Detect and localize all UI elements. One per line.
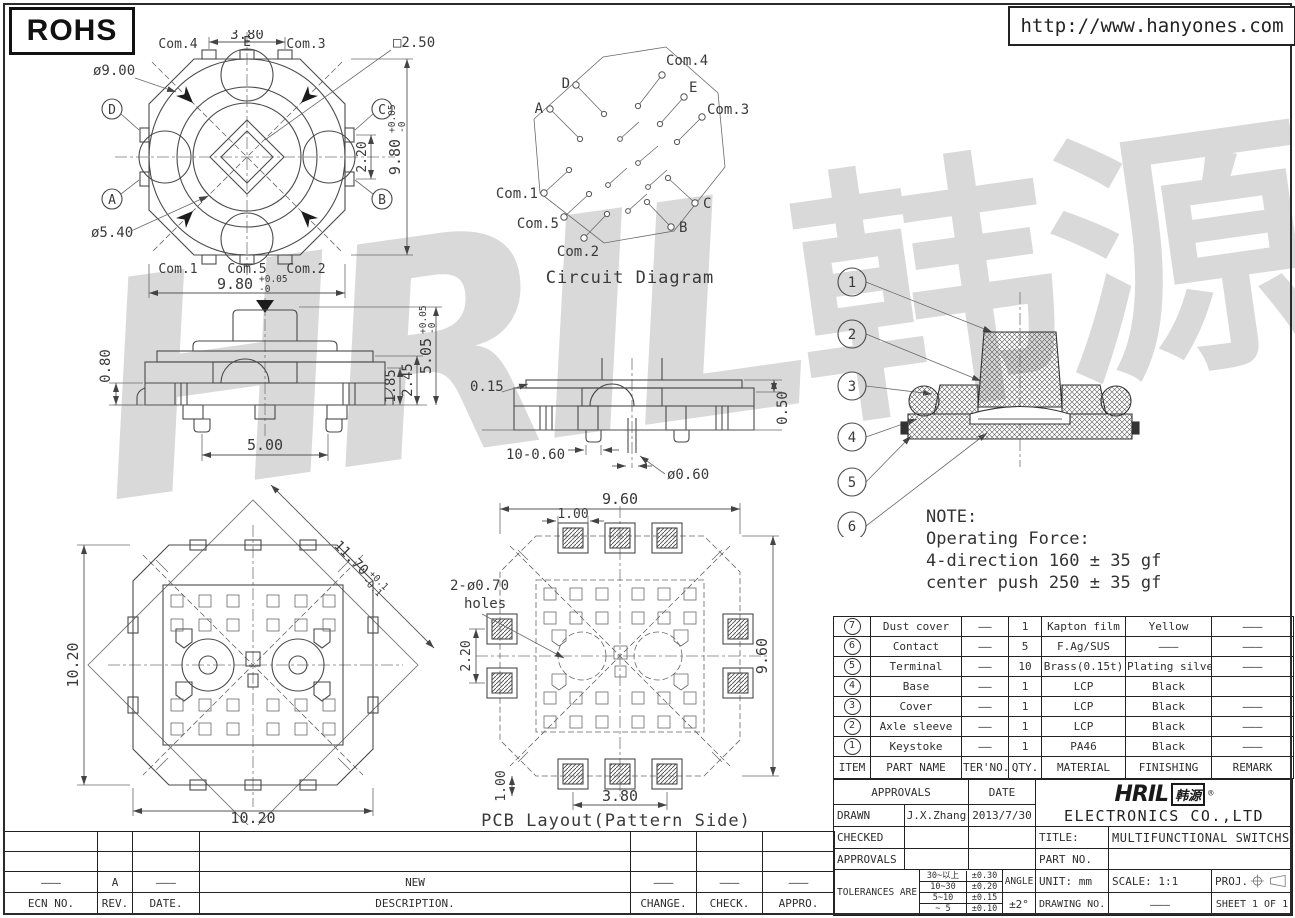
unit-label: UNIT: mm — [1035, 869, 1109, 893]
revision-row: ———A ———NEW —————— ——— — [5, 872, 835, 893]
drawing-no-label: DRAWING NO. — [1035, 892, 1109, 916]
dim-label: 9.60 — [602, 490, 638, 508]
revision-table: ———A ———NEW —————— ——— ECN NO.REV. DATE.… — [4, 831, 835, 915]
dim-label: 0.15 — [470, 379, 504, 395]
contact-label: D — [108, 103, 116, 118]
company-logo: HRIL韩源® — [1036, 782, 1292, 807]
dim-label: 3.80 — [602, 787, 638, 805]
table-row: 6 Contact—— 5F.Ag/SUS —————— — [834, 637, 1294, 657]
table-row: 1 Keystoke—— 1PA46 Black——— — [834, 737, 1294, 757]
part-name: Base — [871, 677, 962, 697]
callout-label: 4 — [848, 430, 856, 446]
terminal-label: B — [679, 220, 687, 236]
table-row: 5 Terminal—— 10Brass(0.15t) Plating silv… — [834, 657, 1294, 677]
dim-label: ø5.40 — [91, 225, 133, 241]
callout-label: 6 — [848, 519, 856, 535]
bottom-view: 10.20 10.20 11.70 +0.1 -0.1 — [58, 485, 458, 825]
dim-label: 9.80 — [386, 139, 404, 175]
terminal-label: D — [562, 76, 570, 92]
revision-row — [5, 852, 835, 872]
dim-label: 2.20 — [355, 141, 370, 172]
table-row: 4 Base—— 1LCP Black — [834, 677, 1294, 697]
scale-label: SCALE: 1:1 — [1108, 869, 1212, 893]
item-number: 7 — [844, 618, 861, 635]
angle-label: ANGLE — [1002, 869, 1036, 893]
item-number: 4 — [844, 678, 861, 695]
terminal-label: Com.4 — [158, 37, 197, 52]
projection-cell: PROJ. — [1211, 869, 1293, 893]
side-view: 0.15 10-0.60 ø0.60 0.50 — [462, 358, 797, 503]
rohs-mark: ROHS — [9, 7, 135, 55]
website-url: http://www.hanyones.com — [1008, 6, 1295, 46]
callout-numbers: 1 2 3 4 5 6 — [838, 268, 866, 537]
table-row: 3 Cover—— 1LCP Black——— — [834, 697, 1294, 717]
part-name: Cover — [871, 697, 962, 717]
callout-label: 5 — [848, 475, 856, 491]
dim-tolerance: -0 — [259, 284, 271, 295]
dim-label: 11.70 — [330, 538, 371, 579]
terminal-label: Com.3 — [286, 37, 325, 52]
date-header: DATE — [968, 779, 1036, 805]
item-number: 6 — [844, 638, 861, 655]
terminal-label: Com.3 — [707, 102, 749, 118]
part-name: Axle sleeve — [871, 717, 962, 737]
note-block: NOTE: Operating Force: 4-direction 160 ±… — [926, 506, 1161, 594]
terminal-label: E — [243, 35, 251, 50]
part-name: Dust cover — [871, 617, 962, 637]
holes-label: holes — [464, 596, 506, 612]
table-row: 2 Axle sleeve—— 1LCP Black——— — [834, 717, 1294, 737]
dim-label: □2.50 — [393, 35, 435, 51]
company-block: HRIL韩源® ELECTRONICS CO.,LTD — [1035, 779, 1293, 827]
dim-label: 2.45 — [400, 363, 416, 397]
terminal-label: Com.2 — [557, 244, 599, 260]
pcb-layout: 9.60 1.00 2-ø0.70 holes 2.20 9.60 1.00 3… — [448, 488, 800, 832]
title-label: TITLE: — [1035, 826, 1109, 849]
drawn-label: DRAWN — [833, 804, 905, 827]
dim-label: 5.00 — [247, 436, 283, 454]
checked-label: CHECKED — [833, 826, 905, 849]
item-number: 2 — [844, 718, 861, 735]
item-number: 5 — [844, 658, 861, 675]
parts-table: 7 Dust cover—— 1Kapton film Yellow——— 6 … — [833, 616, 1294, 779]
dim-label: ø9.00 — [93, 63, 135, 79]
dim-label: 1.00 — [557, 507, 588, 522]
dim-label: 10-0.60 — [506, 447, 565, 463]
terminal-label: Com.2 — [286, 262, 325, 277]
dim-label: 1.00 — [494, 770, 509, 801]
holes-label: 2-ø0.70 — [450, 578, 509, 594]
projection-symbol-icon — [1250, 874, 1289, 888]
part-no-label: PART NO. — [1035, 848, 1109, 870]
dim-label: 2.20 — [459, 640, 474, 671]
drawn-by: J.X.Zhang — [904, 804, 969, 827]
engineering-drawing-page: HRIL韩源 ROHS http://www.hanyones.com — [0, 0, 1295, 918]
dim-label: 1.85 — [383, 369, 399, 403]
contact-label: A — [108, 193, 116, 208]
drawing-no-value: ——— — [1108, 892, 1212, 916]
part-name: Contact — [871, 637, 962, 657]
dim-label: 9.60 — [753, 638, 771, 674]
company-name: ELECTRONICS CO.,LTD — [1064, 807, 1264, 825]
contact-label: C — [378, 103, 386, 118]
terminal-label: A — [535, 101, 544, 117]
contact-label: B — [378, 193, 386, 208]
note-line: Operating Force: — [926, 528, 1161, 550]
drawing-title: MULTIFUNCTIONAL SWITCHS — [1108, 826, 1293, 849]
dim-label: 5.05 — [417, 338, 435, 374]
terminal-label: Com.5 — [517, 216, 559, 232]
table-header-row: ITEMPART NAME TER'NO.QTY. MATERIALFINISH… — [834, 757, 1294, 779]
drawn-date: 2013/7/30 — [968, 804, 1036, 827]
note-line: center push 250 ± 35 gf — [926, 572, 1161, 594]
dim-tolerance: -0 — [427, 322, 438, 334]
title-block: APPROVALS DATE DRAWN J.X.Zhang 2013/7/30… — [833, 779, 1293, 916]
approvals-header: APPROVALS — [833, 779, 969, 805]
top-view: 3.80 □2.50 ø9.00 ø5.40 2.20 9.80 +0.05 -… — [75, 30, 440, 305]
note-line: 4-direction 160 ± 35 gf — [926, 550, 1161, 572]
revision-header-row: ECN NO.REV. DATE.DESCRIPTION. CHANGE.CHE… — [5, 893, 835, 915]
terminal-label: Com.1 — [158, 262, 197, 277]
callout-label: 1 — [848, 275, 856, 291]
sheet-label: SHEET 1 OF 1 — [1211, 892, 1293, 916]
part-name: Terminal — [871, 657, 962, 677]
dim-label: 0.80 — [98, 349, 114, 383]
item-number: 1 — [844, 738, 861, 755]
part-name: Keystoke — [871, 737, 962, 757]
terminal-label: E — [689, 80, 697, 96]
terminal-label: Com.1 — [496, 186, 538, 202]
angle-value: ±2° — [1002, 892, 1036, 916]
dim-label: 0.50 — [775, 391, 791, 425]
dim-label: 10.20 — [64, 642, 82, 687]
terminal-label: C — [703, 196, 711, 212]
view-caption: PCB Layout(Pattern Side) — [481, 811, 751, 831]
tolerance-table: 30~以上±0.30 10~30±0.20 5~10±0.15 ~ 5±0.10 — [920, 871, 1002, 914]
approvals-label: APPROVALS — [833, 848, 905, 870]
terminal-label: Com.4 — [666, 53, 708, 69]
revision-row — [5, 832, 835, 852]
dim-label: ø0.60 — [667, 467, 709, 483]
circuit-diagram: Com.4 E Com.3 C B Com.2 Com.5 Com.1 A D … — [488, 35, 818, 300]
callout-label: 2 — [848, 327, 856, 343]
terminal-label: Com.5 — [227, 262, 266, 277]
note-line: NOTE: — [926, 506, 1161, 528]
table-row: 7 Dust cover—— 1Kapton film Yellow——— — [834, 617, 1294, 637]
dim-label: 10.20 — [230, 809, 275, 825]
dim-tolerance: -0 — [397, 121, 408, 133]
dim-label: 9.80 — [217, 275, 253, 293]
tolerances-label: TOLERANCES ARE — [833, 869, 920, 916]
callout-label: 3 — [848, 379, 856, 395]
view-caption: Circuit Diagram — [546, 268, 715, 288]
item-number: 3 — [844, 698, 861, 715]
section-view: 1 2 3 4 5 6 — [822, 252, 1295, 537]
push-arrow-icon — [256, 300, 274, 313]
